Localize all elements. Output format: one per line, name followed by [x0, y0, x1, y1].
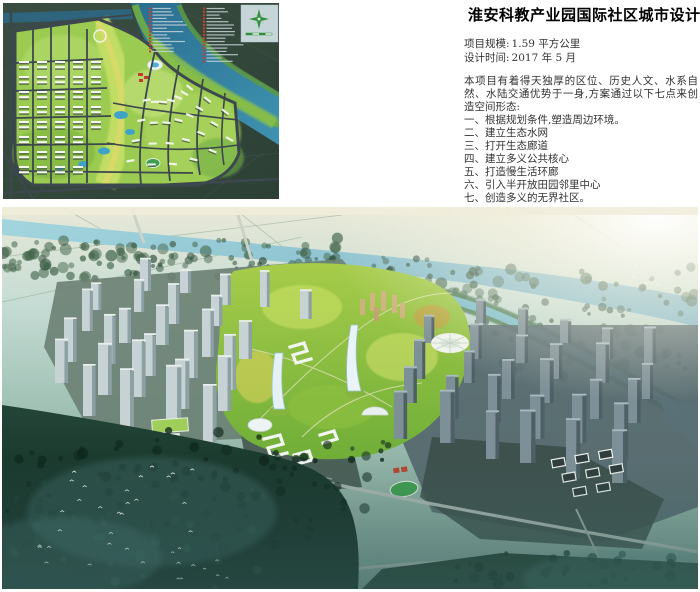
aerial-rendering-image [2, 207, 698, 589]
meta-date-label: 设计时间: [464, 52, 510, 64]
compass-panel [241, 5, 278, 42]
masterplan-image [3, 3, 279, 199]
design-point-6: 六、引入半开放田园邻里中心 [464, 179, 698, 192]
design-point-4: 四、建立多义公共核心 [464, 153, 698, 166]
design-point-7: 七、创造多义的无界社区。 [464, 192, 698, 205]
design-point-5: 五、打造慢生活环廊 [464, 166, 698, 179]
scale-bar [246, 33, 272, 35]
intro-paragraph: 本项目有着得天独厚的区位、历史人文、水系自然、水陆交通优势于一身,方案通过以下七… [464, 75, 698, 114]
design-point-1: 一、根据规划条件,塑造周边环境。 [464, 114, 698, 127]
design-point-2: 二、建立生态水网 [464, 127, 698, 140]
meta-scale-label: 项目规模: [464, 38, 510, 50]
meta-scale: 项目规模:1.59 平方公里 [464, 37, 698, 51]
portfolio-page: { "page": { "title": "淮安科教产业园国际社区城市设计", … [0, 0, 700, 592]
design-point-3: 三、打开生态廊道 [464, 140, 698, 153]
project-text-block: 淮安科教产业园国际社区城市设计 项目规模:1.59 平方公里 设计时间:2017… [464, 2, 698, 205]
meta-date: 设计时间:2017 年 5 月 [464, 51, 698, 65]
aerial-rendering-svg [2, 207, 698, 589]
project-title: 淮安科教产业园国际社区城市设计 [468, 4, 698, 25]
meta-date-value: 2017 年 5 月 [512, 52, 576, 64]
top-cream-band [2, 207, 698, 215]
meta-scale-value: 1.59 平方公里 [512, 38, 581, 50]
bottom-fog [2, 457, 698, 589]
masterplan-svg [3, 3, 279, 199]
